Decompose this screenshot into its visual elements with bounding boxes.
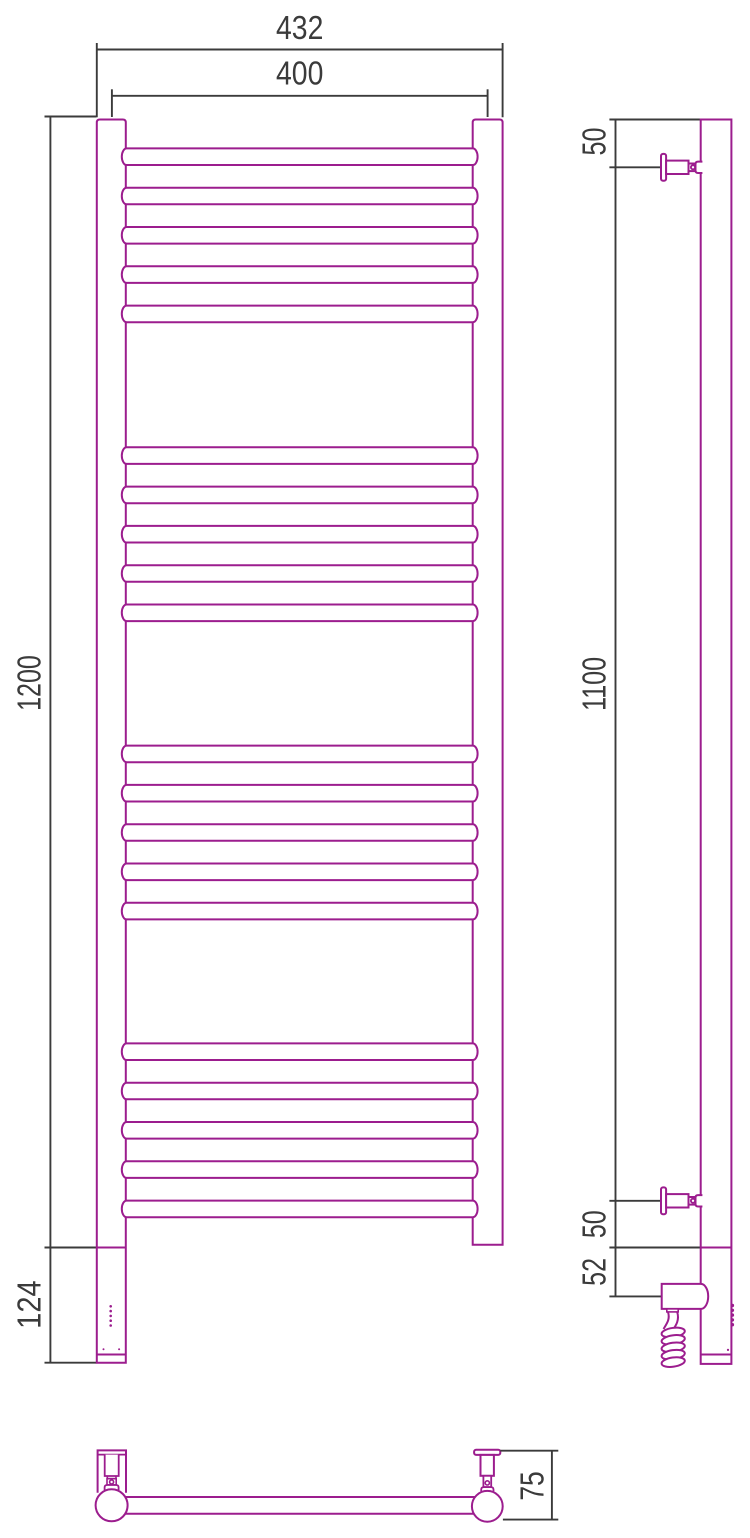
svg-text:432: 432 bbox=[276, 9, 323, 47]
svg-text:1200: 1200 bbox=[11, 655, 48, 711]
svg-text:400: 400 bbox=[276, 54, 323, 92]
svg-text:50: 50 bbox=[576, 1210, 613, 1238]
svg-text:75: 75 bbox=[515, 1471, 551, 1500]
svg-text:50: 50 bbox=[576, 128, 613, 156]
svg-text:52: 52 bbox=[576, 1258, 613, 1286]
svg-text:124: 124 bbox=[11, 1280, 48, 1328]
svg-text:1100: 1100 bbox=[576, 657, 613, 711]
